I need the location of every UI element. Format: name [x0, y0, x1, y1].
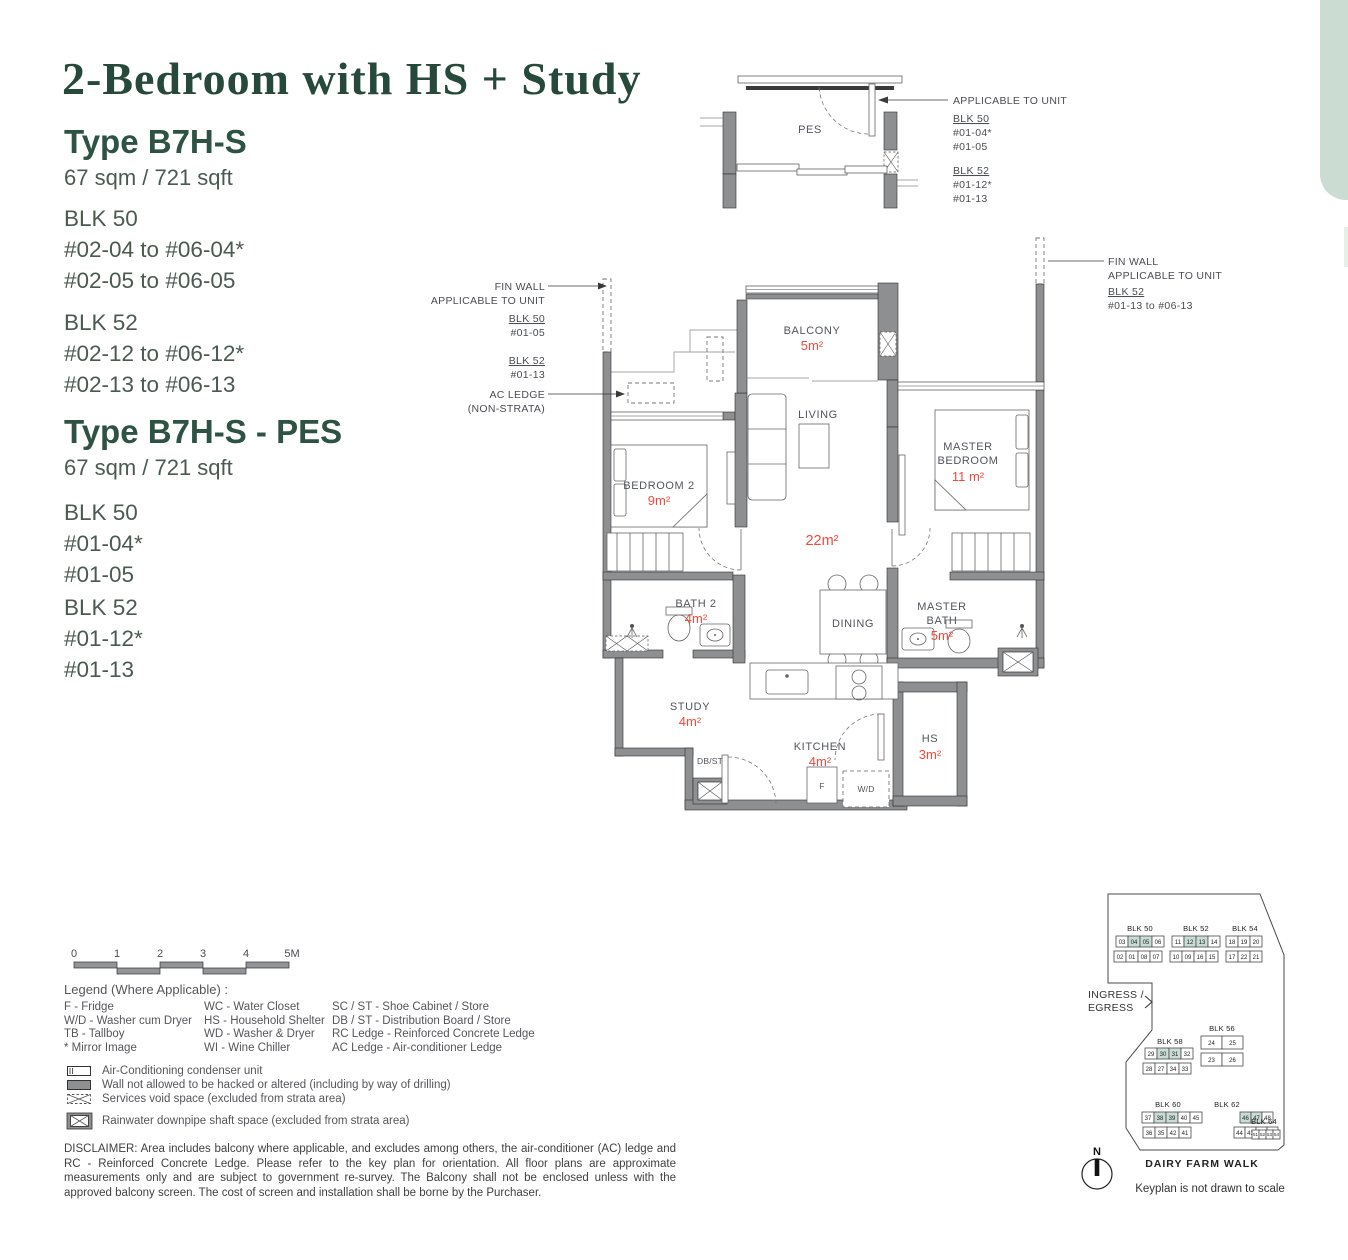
dining-label: DINING [832, 618, 874, 630]
legend-item: * Mirror Image [64, 1042, 204, 1056]
study-area: 4m² [679, 714, 702, 729]
keyplan-unit-number: 23 [1208, 1058, 1215, 1064]
keyplan-unit-number: 41 [1182, 1131, 1189, 1137]
unit-number: #01-04* [64, 528, 143, 559]
keyplan-unit-number: 52 [1260, 1132, 1266, 1137]
keyplan-unit-number: 15 [1209, 955, 1216, 961]
svg-text:BLK 52: BLK 52 [509, 355, 545, 367]
legend-item: TB - Tallboy [64, 1028, 204, 1042]
keyplan-unit-number: 13 [1199, 940, 1206, 946]
svg-text:#01-13 to #06-13: #01-13 to #06-13 [1108, 300, 1193, 312]
keyplan-unit-number: 31 [1172, 1052, 1179, 1058]
keyplan-unit-number: 27 [1158, 1067, 1165, 1073]
keyplan-block-label: BLK 60 [1155, 1100, 1181, 1109]
keyplan-unit-number: 40 [1181, 1116, 1188, 1122]
keyplan-block-label: BLK 58 [1157, 1037, 1183, 1046]
blk-name: BLK 52 [64, 592, 143, 623]
washer-dryer-label: W/D [857, 784, 874, 794]
keyplan-block-label: BLK 52 [1183, 924, 1209, 933]
keyplan-unit-number: 30 [1160, 1052, 1167, 1058]
scale-tick: 4 [243, 948, 249, 960]
svg-text:N: N [1093, 1146, 1101, 1158]
keyplan-unit-number: 22 [1241, 955, 1248, 961]
legend-item: SC / ST - Shoe Cabinet / Store [332, 1001, 535, 1015]
fin-wall-right-dashed [1036, 238, 1044, 284]
keyplan-unit-number: 21 [1253, 955, 1260, 961]
keyplan-block-label: BLK 50 [1127, 924, 1153, 933]
ingress-egress-label: INGRESS / [1088, 989, 1144, 1001]
legend-item: DB / ST - Distribution Board / Store [332, 1015, 535, 1029]
fin-wall-left-annotation: FIN WALL APPLICABLE TO UNIT BLK 50 #01-0… [431, 281, 607, 381]
legend-symbol-row: Rainwater downpipe shaft space (excluded… [66, 1112, 451, 1130]
keyplan-block-label: BLK 64 [1251, 1117, 1277, 1126]
keyplan-unit-number: 18 [1229, 940, 1236, 946]
legend-item: F - Fridge [64, 1001, 204, 1015]
svg-text:#01-13: #01-13 [953, 193, 988, 205]
keyplan-unit-number: 03 [1119, 940, 1126, 946]
keyplan-unit-number: 33 [1182, 1067, 1189, 1073]
keyplan-unit-number: 54 [1274, 1132, 1280, 1137]
hs-area: 3m² [919, 747, 942, 762]
unit-number: #01-12* [64, 623, 143, 654]
study-label: STUDY [670, 701, 710, 713]
keyplan-unit-number: 51 [1253, 1132, 1259, 1137]
keyplan-note: Keyplan is not drawn to scale [1135, 1183, 1285, 1195]
unit-floorplan: BALCONY 5m² LIVING 22m² MASTER BEDROOM 1… [431, 238, 1223, 810]
balcony-label: BALCONY [784, 325, 841, 337]
scale-tick: 3 [200, 948, 206, 960]
legend-item: HS - Household Shelter [204, 1015, 332, 1029]
keyplan-unit-number: 36 [1146, 1131, 1153, 1137]
svg-text:FIN WALL: FIN WALL [495, 281, 545, 293]
pes-annotation: APPLICABLE TO UNIT BLK 50 #01-04* #01-05… [953, 95, 1067, 205]
legend-item: WD - Washer & Dryer [204, 1028, 332, 1042]
rainwater-shaft-symbol-icon [66, 1112, 94, 1130]
living-label: LIVING [798, 409, 838, 421]
legend-symbols: Air-Conditioning condenser unit Wall not… [66, 1064, 451, 1130]
legend-symbol-row: Wall not allowed to be hacked or altered… [66, 1078, 451, 1092]
street-label: DAIRY FARM WALK [1145, 1158, 1259, 1170]
type1-blk50-group: BLK 50 #02-04 to #06-04* #02-05 to #06-0… [64, 203, 244, 296]
keyplan-unit-number: 01 [1129, 955, 1136, 961]
bedroom2-label: BEDROOM 2 [623, 480, 694, 492]
keyplan-unit-number: 37 [1145, 1116, 1152, 1122]
master-bath-area: 5m² [931, 628, 954, 643]
kitchen-area: 4m² [809, 754, 832, 769]
keyplan-block-label: BLK 56 [1209, 1024, 1235, 1033]
keyplan-blocks: BLK 500304050602010807BLK 52111213141009… [1114, 924, 1280, 1139]
ac-condenser-symbol-icon [66, 1064, 94, 1078]
scale-bar: 0 1 2 3 4 5M [60, 940, 380, 985]
fin-wall-left-dashed [603, 279, 611, 352]
scale-tick: 1 [114, 948, 120, 960]
legend-item: W/D - Washer cum Dryer [64, 1015, 204, 1029]
windows [611, 286, 1044, 420]
unit-range: #02-04 to #06-04* [64, 234, 244, 265]
page-edge-tab [1320, 0, 1348, 200]
unit-range: #02-12 to #06-12* [64, 338, 244, 369]
scale-tick: 2 [157, 948, 163, 960]
services-void-symbol-icon [66, 1092, 94, 1106]
keyplan-unit-number: 42 [1170, 1131, 1177, 1137]
legend-abbreviations: F - Fridge W/D - Washer cum Dryer TB - T… [64, 1001, 535, 1055]
keyplan-unit-number: 46 [1242, 1116, 1249, 1122]
type-area-b7hs: 67 sqm / 721 sqft [64, 165, 233, 191]
pes-room-label: PES [798, 124, 822, 136]
ac-ledge-annotation: AC LEDGE (NON-STRATA) [468, 389, 625, 415]
keyplan-unit-number: 45 [1193, 1116, 1200, 1122]
unit-range: #02-05 to #06-05 [64, 265, 244, 296]
type2-blk52-group: BLK 52 #01-12* #01-13 [64, 592, 143, 685]
keyplan-unit-number: 20 [1253, 940, 1260, 946]
keyplan-unit-number: 38 [1157, 1116, 1164, 1122]
legend-symbol-label: Rainwater downpipe shaft space (excluded… [102, 1115, 409, 1127]
scale-tick: 0 [71, 948, 77, 960]
unit-range: #02-13 to #06-13 [64, 369, 244, 400]
type-title-b7hs: Type B7H-S [64, 123, 247, 161]
keyplan-unit-number: 09 [1185, 955, 1192, 961]
svg-text:#01-12*: #01-12* [953, 179, 992, 191]
scale-tick: 5M [284, 948, 299, 960]
disclaimer-text: DISCLAIMER: Area includes balcony where … [64, 1142, 676, 1200]
type2-blk50-group: BLK 50 #01-04* #01-05 [64, 497, 143, 590]
balcony-area: 5m² [801, 338, 824, 353]
svg-text:FIN WALL: FIN WALL [1108, 256, 1158, 268]
keyplan-unit-number: 24 [1208, 1041, 1215, 1047]
master-bath-label-1: MASTER [917, 601, 966, 613]
legend-symbol-label: Wall not allowed to be hacked or altered… [102, 1079, 451, 1091]
keyplan-unit-number: 07 [1153, 955, 1160, 961]
ingress-arrow-icon [1145, 996, 1152, 1008]
keyplan: BLK 500304050602010807BLK 52111213141009… [1075, 885, 1335, 1215]
svg-text:APPLICABLE TO UNIT: APPLICABLE TO UNIT [431, 295, 545, 307]
legend-item: RC Ledge - Reinforced Concrete Ledge [332, 1028, 535, 1042]
no-hack-wall-symbol-icon [66, 1078, 94, 1092]
fin-wall-right-annotation: FIN WALL APPLICABLE TO UNIT BLK 52 #01-1… [1048, 256, 1222, 312]
keyplan-unit-number: 34 [1170, 1067, 1177, 1073]
blk-name: BLK 50 [64, 203, 244, 234]
legend-column-2: WC - Water Closet HS - Household Shelter… [204, 1001, 332, 1055]
legend-column-1: F - Fridge W/D - Washer cum Dryer TB - T… [64, 1001, 204, 1055]
legend-item: WC - Water Closet [204, 1001, 332, 1015]
floorplan-brochure-page: { "page": { "title": "2-Bedroom with HS … [0, 0, 1348, 1260]
keyplan-unit-number: 39 [1169, 1116, 1176, 1122]
keyplan-unit-number: 05 [1143, 940, 1150, 946]
legend-column-3: SC / ST - Shoe Cabinet / Store DB / ST -… [332, 1001, 535, 1055]
master-bedroom-label-1: MASTER [943, 441, 992, 453]
ingress-egress-label-2: EGRESS [1088, 1002, 1134, 1014]
keyplan-unit-number: 25 [1229, 1041, 1236, 1047]
legend-item: WI - Wine Chiller [204, 1042, 332, 1056]
legend-symbol-label: Air-Conditioning condenser unit [102, 1065, 262, 1077]
hs-label: HS [922, 733, 938, 745]
svg-text:BLK 50: BLK 50 [509, 313, 545, 325]
svg-text:BLK 52: BLK 52 [953, 165, 989, 177]
keyplan-unit-number: 04 [1131, 940, 1138, 946]
keyplan-unit-number: 08 [1141, 955, 1148, 961]
keyplan-unit-number: 26 [1229, 1058, 1236, 1064]
keyplan-unit-number: 10 [1173, 955, 1180, 961]
bath2-label: BATH 2 [675, 598, 716, 610]
master-bedroom-area: 11 m² [952, 469, 985, 484]
svg-text:APPLICABLE TO UNIT: APPLICABLE TO UNIT [953, 95, 1067, 107]
legend-item: AC Ledge - Air-conditioner Ledge [332, 1042, 535, 1056]
blk-name: BLK 50 [64, 497, 143, 528]
keyplan-unit-number: 06 [1155, 940, 1162, 946]
legend-symbol-label: Services void space (excluded from strat… [102, 1093, 346, 1105]
svg-text:BLK 52: BLK 52 [1108, 286, 1144, 298]
fridge-label: F [819, 781, 824, 791]
compass-icon: N [1082, 1146, 1112, 1189]
svg-text:AC LEDGE: AC LEDGE [490, 389, 546, 401]
master-bath-label-2: BATH [927, 615, 958, 627]
keyplan-block-label: BLK 54 [1232, 924, 1258, 933]
bedroom2-area: 9m² [648, 493, 671, 508]
dbst-label: DB/ST [697, 756, 723, 766]
pes-diagram: PES APPLICABLE TO UNIT BLK 50 #01-04* #0… [700, 76, 1067, 208]
keyplan-unit-number: 53 [1267, 1132, 1273, 1137]
keyplan-unit-number: 28 [1146, 1067, 1153, 1073]
kitchen-label: KITCHEN [794, 741, 846, 753]
keyplan-unit-number: 32 [1184, 1052, 1191, 1058]
svg-text:#01-04*: #01-04* [953, 127, 992, 139]
bath2-area: 4m² [685, 611, 708, 626]
living-area: 22m² [805, 533, 838, 549]
keyplan-unit-number: 35 [1158, 1131, 1165, 1137]
legend-title: Legend (Where Applicable) : [64, 982, 228, 997]
svg-text:#01-05: #01-05 [953, 141, 988, 153]
svg-text:BLK 50: BLK 50 [953, 113, 989, 125]
page-edge-tab-secondary [1344, 227, 1348, 267]
unit-number: #01-05 [64, 559, 143, 590]
blk-name: BLK 52 [64, 307, 244, 338]
keyplan-unit-number: 14 [1211, 940, 1218, 946]
type-area-b7hs-pes: 67 sqm / 721 sqft [64, 455, 233, 481]
legend-symbol-row: Air-Conditioning condenser unit [66, 1064, 451, 1078]
ac-ledge-dashed [628, 383, 674, 403]
keyplan-unit-number: 11 [1175, 940, 1182, 946]
keyplan-unit-number: 02 [1117, 955, 1124, 961]
unit-number: #01-13 [64, 654, 143, 685]
type-title-b7hs-pes: Type B7H-S - PES [64, 413, 342, 451]
keyplan-unit-number: 19 [1241, 940, 1248, 946]
tallboy-dashed [707, 337, 723, 381]
keyplan-unit-number: 17 [1229, 955, 1236, 961]
keyplan-unit-number: 44 [1236, 1131, 1243, 1137]
svg-text:#01-05: #01-05 [511, 327, 546, 339]
keyplan-unit-number: 12 [1187, 940, 1194, 946]
legend-symbol-row: Services void space (excluded from strat… [66, 1092, 451, 1106]
keyplan-unit-number: 29 [1148, 1052, 1155, 1058]
keyplan-block-label: BLK 62 [1214, 1100, 1240, 1109]
master-bedroom-label-2: BEDROOM [937, 455, 998, 467]
type1-blk52-group: BLK 52 #02-12 to #06-12* #02-13 to #06-1… [64, 307, 244, 400]
keyplan-unit-number: 16 [1197, 955, 1204, 961]
svg-text:(NON-STRATA): (NON-STRATA) [468, 403, 545, 415]
floorplan-svg: PES APPLICABLE TO UNIT BLK 50 #01-04* #0… [425, 55, 1225, 845]
svg-text:APPLICABLE TO UNIT: APPLICABLE TO UNIT [1108, 270, 1222, 282]
svg-text:#01-13: #01-13 [511, 369, 546, 381]
